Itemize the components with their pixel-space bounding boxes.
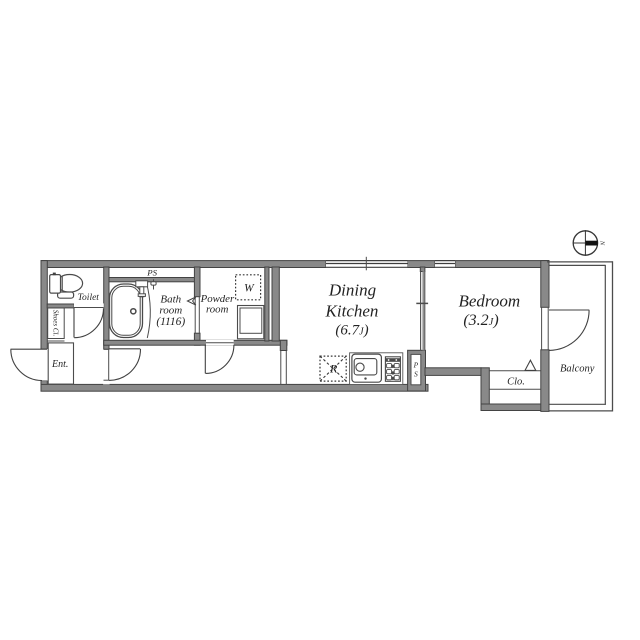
svg-text:Toilet: Toilet — [78, 293, 100, 303]
svg-text:N: N — [599, 240, 606, 246]
svg-text:Kitchen: Kitchen — [325, 302, 379, 321]
svg-text:Balcony: Balcony — [560, 363, 595, 374]
svg-text:Clo.: Clo. — [507, 377, 525, 388]
svg-text:(3.2J): (3.2J) — [463, 312, 498, 329]
svg-text:Ent.: Ent. — [51, 359, 68, 370]
svg-text:(6.7J): (6.7J) — [335, 323, 368, 339]
svg-text:S: S — [414, 370, 418, 379]
svg-text:P: P — [413, 361, 419, 370]
svg-text:room: room — [159, 305, 182, 317]
svg-text:Dining: Dining — [328, 281, 376, 300]
svg-text:PS: PS — [146, 267, 157, 277]
svg-text:Shoes Cl.: Shoes Cl. — [51, 310, 59, 337]
svg-text:room: room — [206, 304, 229, 316]
svg-text:Bedroom: Bedroom — [458, 292, 520, 311]
svg-text:W: W — [244, 282, 255, 294]
svg-text:(1116): (1116) — [156, 316, 185, 328]
svg-text:R: R — [329, 361, 338, 375]
